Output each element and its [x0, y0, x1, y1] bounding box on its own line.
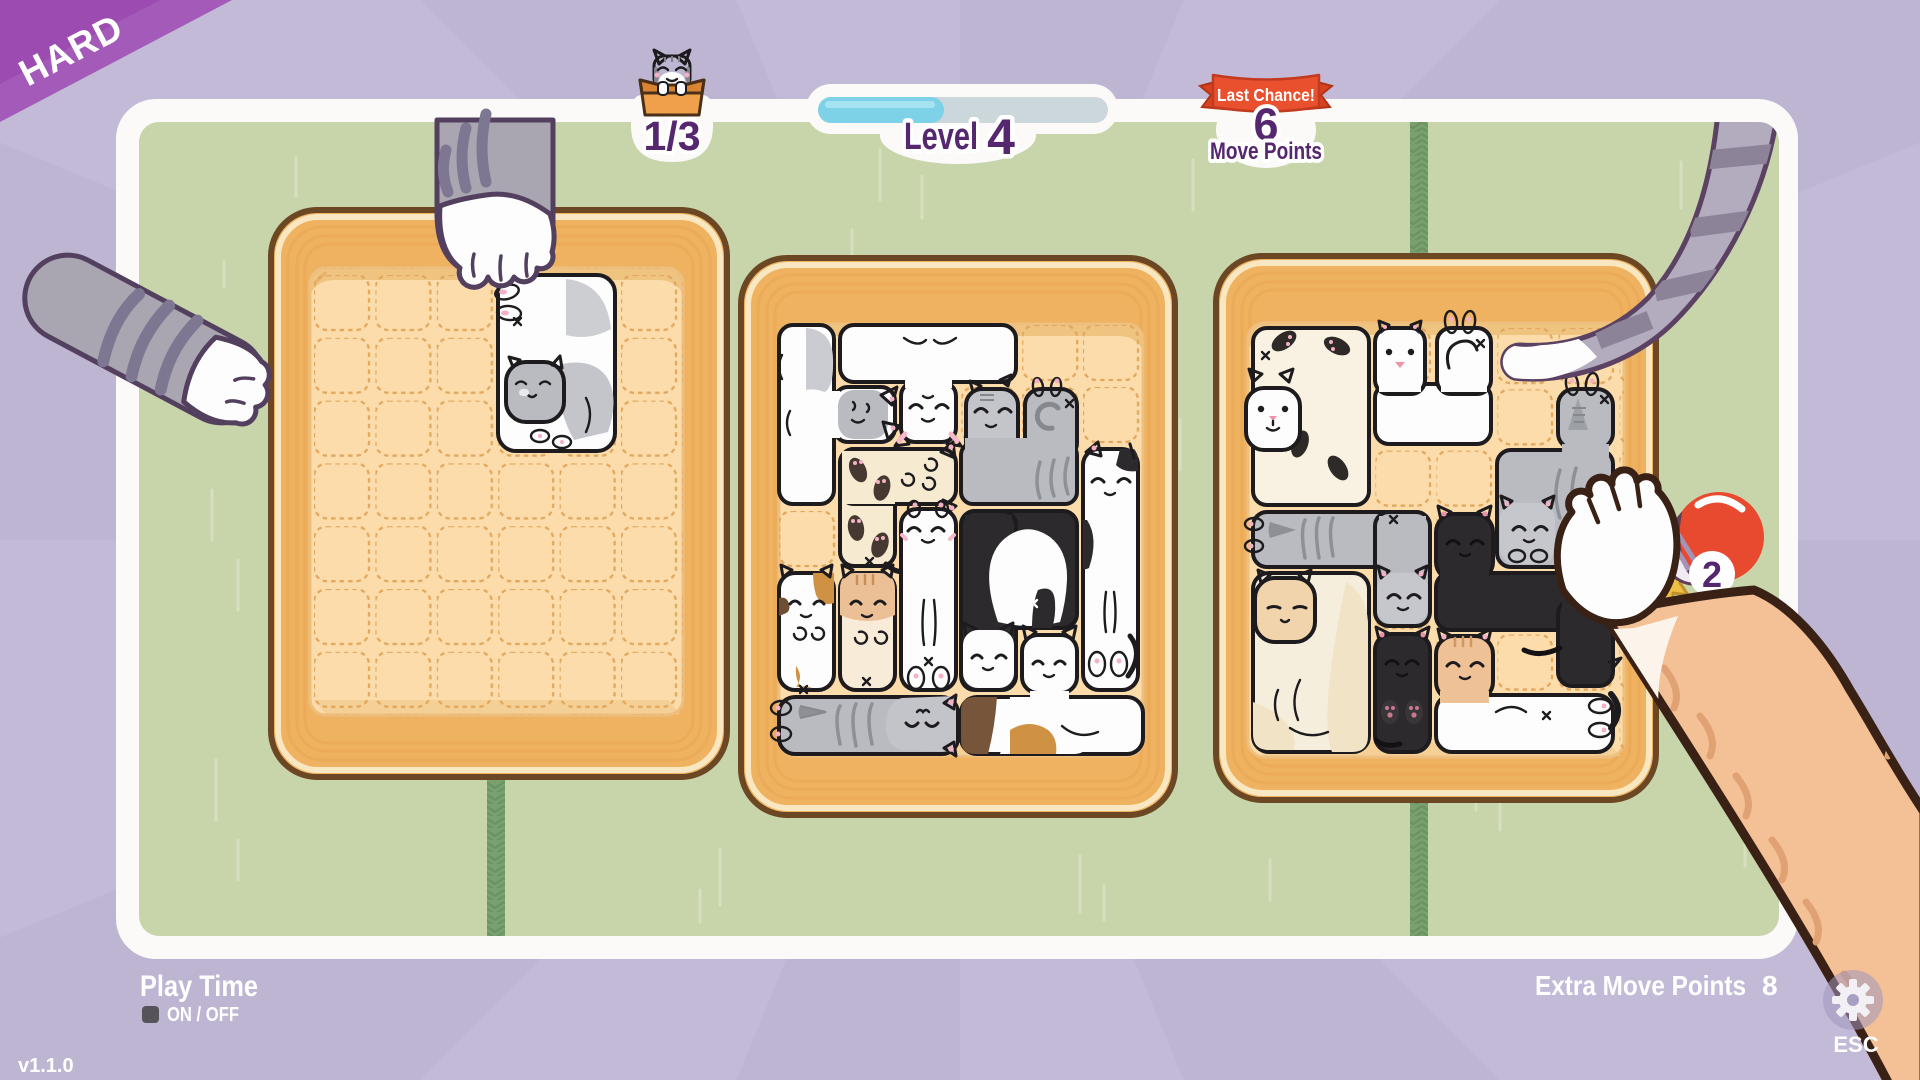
- svg-text:ON / OFF: ON / OFF: [167, 1004, 239, 1026]
- svg-text:4: 4: [987, 109, 1015, 165]
- svg-text:Move Points: Move Points: [1210, 138, 1322, 165]
- svg-text:v1.1.0: v1.1.0: [18, 1055, 74, 1077]
- svg-text:Play Time: Play Time: [140, 970, 258, 1003]
- svg-text:8: 8: [1762, 970, 1778, 1001]
- svg-text:ESC: ESC: [1833, 1032, 1878, 1057]
- svg-text:Extra Move Points: Extra Move Points: [1535, 970, 1746, 1001]
- svg-text:2: 2: [1702, 554, 1722, 595]
- svg-text:1/3: 1/3: [644, 113, 701, 159]
- svg-text:Level: Level: [904, 116, 978, 158]
